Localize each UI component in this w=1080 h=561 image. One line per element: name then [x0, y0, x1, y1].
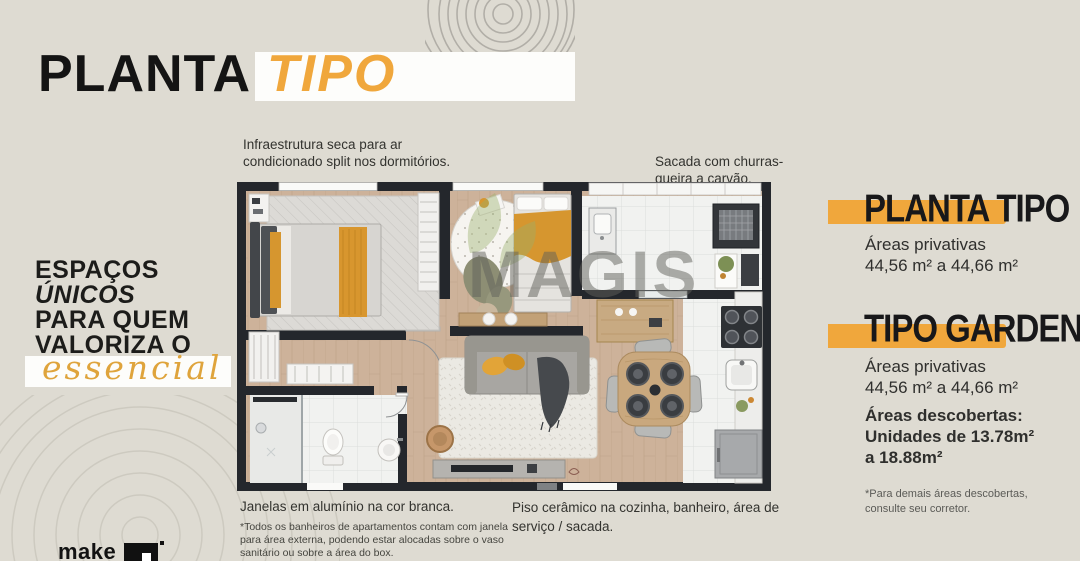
tv-console: [433, 460, 579, 478]
tagline: ESPAÇOS ÚNICOS PARA QUEM VALORIZA O: [35, 258, 191, 358]
kitchen-counter-island: [597, 300, 673, 342]
page-title: PLANTATIPO: [38, 46, 396, 102]
right-panel-footnote: *Para demais áreas descobertas, consulte…: [865, 487, 1028, 517]
brand-logo: make: [58, 541, 166, 561]
area-label: Áreas privativas: [865, 356, 986, 377]
section-header-tipo-garden: TIPO GARDEN: [864, 306, 1080, 351]
area-label: Áreas privativas: [865, 234, 986, 255]
tagline-line: ESPAÇOS: [35, 258, 191, 283]
shower-head: [256, 423, 266, 433]
extra-line: Unidades de 13.78m²: [865, 426, 1034, 447]
bench: [459, 313, 547, 326]
basket: [427, 426, 453, 452]
stove: [721, 306, 762, 348]
extra-line: Áreas descobertas:: [865, 405, 1023, 426]
title-part-2: TIPO: [267, 45, 396, 103]
annotation-piso: Piso cerâmico na cozinha, banheiro, área…: [512, 498, 779, 536]
poster: PLANTATIPO ESPAÇOS ÚNICOS PARA QUEM VALO…: [0, 0, 1080, 561]
tagline-line: PARA QUEM: [35, 308, 191, 333]
double-bed: [250, 222, 381, 318]
annotation-infra: Infraestrutura seca para ar condicionado…: [243, 136, 450, 170]
towel-bar: [253, 397, 297, 402]
title-part-1: PLANTA: [38, 45, 251, 103]
dining-table: [618, 352, 690, 426]
extra-line: a 18.88m²: [865, 447, 943, 468]
area-value: 44,56 m² a 44,66 m²: [865, 255, 1018, 276]
tagline-script-word: essencial: [42, 348, 222, 387]
bedroom-1: [249, 193, 439, 330]
brand-logo-text: make: [58, 541, 116, 561]
annotation-janelas: Janelas em alumínio na cor branca.: [240, 498, 454, 515]
toilet: [323, 429, 343, 465]
shower-box: [250, 395, 302, 483]
fridge: [715, 430, 762, 478]
charcoal-grill: [713, 204, 759, 248]
balcony-glass-door: [639, 291, 687, 298]
plant: [736, 400, 748, 412]
building-logo-icon: [124, 541, 166, 561]
wardrobe: [418, 193, 439, 291]
section-header-planta-tipo: PLANTA TIPO: [864, 186, 1069, 231]
area-value: 44,56 m² a 44,66 m²: [865, 377, 1018, 398]
balcony-shelf: [715, 254, 759, 288]
tagline-line: ÚNICOS: [35, 283, 191, 308]
balcony-sink-cabinet: [589, 208, 616, 254]
leaf-watermark-icon: [440, 183, 560, 273]
annotation-banheiros-note: *Todos os banheiros de apartamentos cont…: [240, 521, 508, 560]
kitchen-sink: [726, 360, 757, 390]
